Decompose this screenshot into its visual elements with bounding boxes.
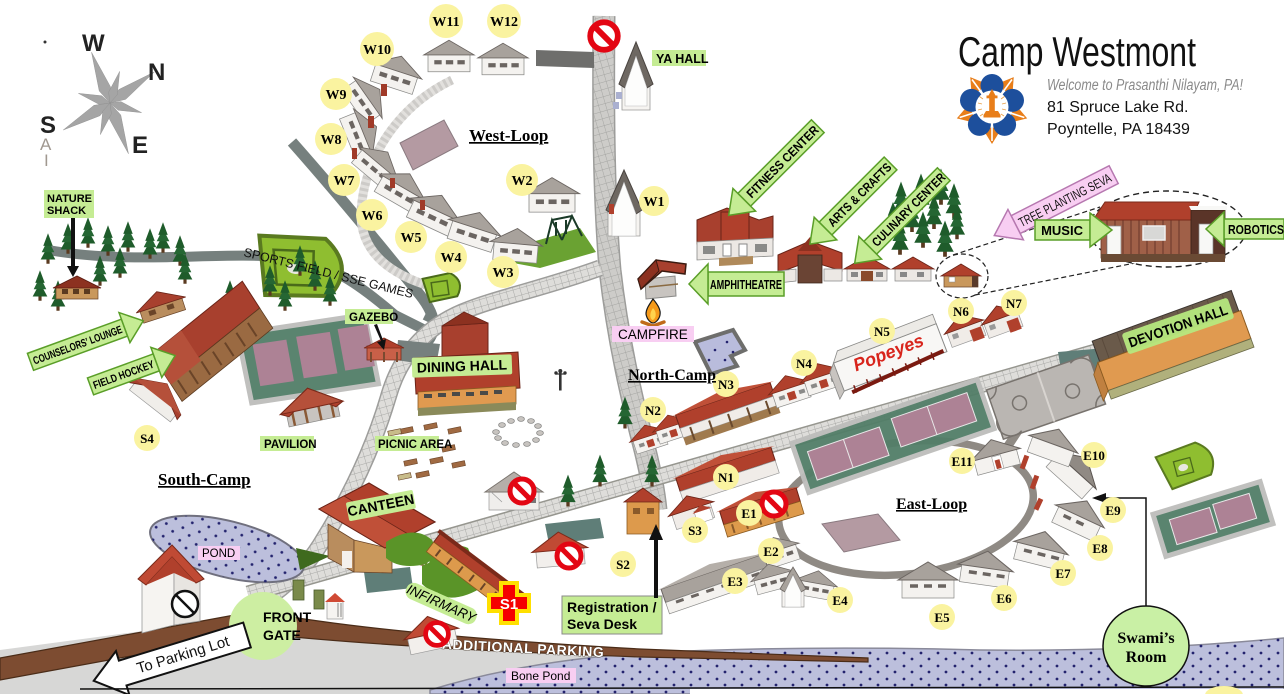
svg-text:N: N	[148, 59, 165, 86]
svg-text:E10: E10	[1083, 448, 1105, 463]
svg-text:FRONT: FRONT	[263, 609, 312, 625]
svg-text:N4: N4	[796, 356, 812, 371]
svg-text:NATURE: NATURE	[47, 193, 92, 205]
svg-text:E6: E6	[996, 591, 1012, 606]
svg-text:W11: W11	[432, 15, 459, 30]
svg-text:W7: W7	[334, 174, 355, 189]
svg-text:E: E	[132, 132, 148, 159]
svg-text:Seva Desk: Seva Desk	[567, 616, 637, 632]
svg-text:E1: E1	[741, 506, 756, 521]
svg-text:POND: POND	[202, 548, 235, 560]
svg-text:SHACK: SHACK	[47, 205, 86, 217]
svg-text:MUSIC: MUSIC	[1041, 223, 1084, 238]
svg-text:S4: S4	[140, 431, 154, 446]
svg-text:PAVILION: PAVILION	[264, 439, 317, 451]
svg-text:DINING HALL: DINING HALL	[417, 356, 508, 375]
svg-text:CAMPFIRE: CAMPFIRE	[618, 327, 688, 342]
svg-text:E4: E4	[832, 593, 848, 608]
svg-text:E2: E2	[763, 544, 778, 559]
svg-text:South-Camp: South-Camp	[158, 470, 251, 489]
svg-text:N3: N3	[718, 377, 734, 392]
svg-text:Poyntelle, PA 18439: Poyntelle, PA 18439	[1047, 121, 1190, 138]
svg-text:S2: S2	[616, 557, 630, 572]
svg-text:I: I	[44, 151, 49, 170]
svg-text:E3: E3	[727, 574, 743, 589]
svg-text:W8: W8	[321, 133, 342, 148]
svg-text:S1: S1	[500, 596, 518, 613]
svg-text:S3: S3	[688, 523, 702, 538]
svg-text:Welcome to Prasanthi Nilayam,: Welcome to Prasanthi Nilayam, PA!	[1047, 77, 1244, 94]
svg-text:N5: N5	[874, 324, 890, 339]
svg-text:W10: W10	[363, 43, 391, 58]
svg-text:PICNIC AREA: PICNIC AREA	[378, 439, 452, 451]
svg-text:YA HALL: YA HALL	[656, 52, 709, 66]
svg-text:N1: N1	[718, 470, 734, 485]
svg-text:Camp Westmont: Camp Westmont	[958, 28, 1196, 75]
svg-text:N6: N6	[953, 304, 969, 319]
svg-text:E8: E8	[1092, 541, 1108, 556]
svg-text:E7: E7	[1055, 566, 1071, 581]
svg-text:W: W	[82, 30, 105, 57]
svg-text:West-Loop: West-Loop	[469, 126, 548, 145]
svg-text:W12: W12	[490, 15, 518, 30]
svg-text:E11: E11	[952, 454, 973, 469]
svg-text:East-Loop: East-Loop	[896, 496, 967, 513]
svg-text:GAZEBO: GAZEBO	[349, 312, 398, 324]
svg-text:ROBOTICS: ROBOTICS	[1228, 222, 1284, 237]
svg-text:W2: W2	[512, 174, 533, 189]
svg-text:Room: Room	[1126, 649, 1168, 666]
svg-text:E9: E9	[1105, 503, 1121, 518]
svg-text:GATE: GATE	[263, 627, 301, 643]
svg-text:W3: W3	[493, 266, 514, 281]
svg-text:Bone Pond: Bone Pond	[511, 669, 570, 683]
svg-text:N2: N2	[645, 403, 661, 418]
svg-text:N7: N7	[1006, 296, 1022, 311]
svg-text:W5: W5	[401, 231, 422, 246]
svg-text:W4: W4	[441, 251, 462, 266]
svg-text:W1: W1	[644, 195, 665, 210]
svg-text:W6: W6	[362, 209, 383, 224]
svg-text:W9: W9	[326, 88, 347, 103]
svg-text:North-Camp: North-Camp	[628, 367, 716, 384]
svg-text:Registration /: Registration /	[567, 599, 657, 615]
svg-text:E5: E5	[934, 610, 950, 625]
svg-text:81 Spruce Lake Rd.: 81 Spruce Lake Rd.	[1047, 99, 1188, 116]
svg-text:Swami’s: Swami’s	[1117, 630, 1174, 647]
svg-text:AMPHITHEATRE: AMPHITHEATRE	[710, 277, 782, 292]
